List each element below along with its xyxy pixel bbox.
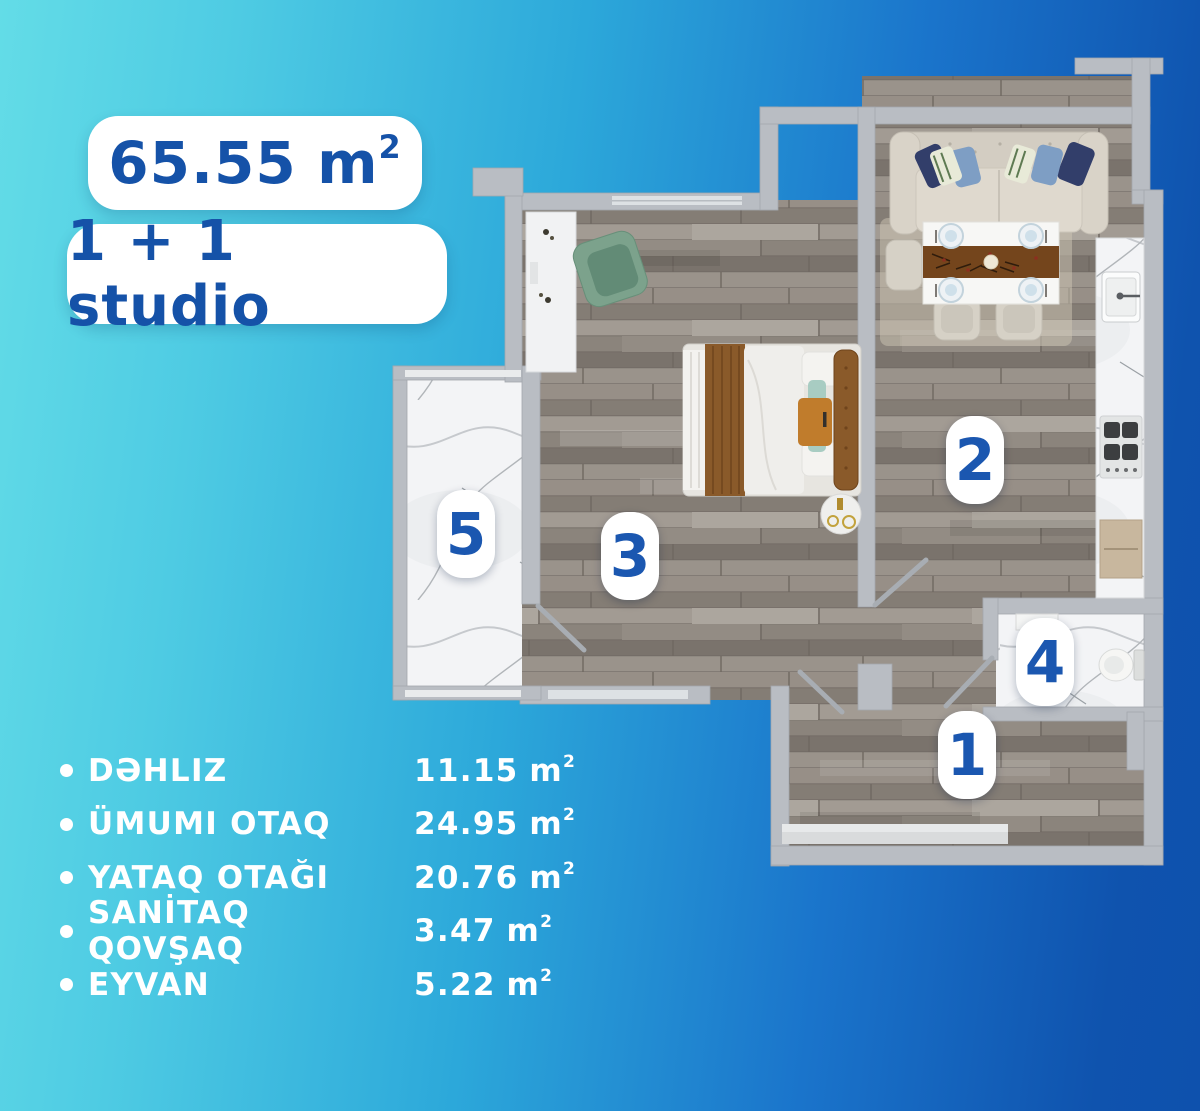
room-marker-4-bathroom: 4 <box>1016 618 1074 706</box>
room-number: 5 <box>446 500 486 568</box>
nightstand <box>821 494 861 534</box>
legend-value: 5.22m2 <box>414 967 553 1003</box>
bullet-icon <box>60 925 73 938</box>
floor-plan-poster: 65.55m2 1 + 1 studio 1 2 3 4 5 DƏHLIZ 11… <box>0 0 1200 1111</box>
room-number: 4 <box>1025 628 1065 696</box>
dining-chair <box>886 240 922 290</box>
room-number: 2 <box>955 426 995 494</box>
bed <box>683 344 861 496</box>
wall-pier <box>473 168 523 196</box>
sofa <box>890 132 1108 234</box>
type-label: 1 + 1 studio <box>67 209 447 339</box>
wall-balcony-right <box>522 366 540 604</box>
legend-label: SANİTAQ QOVŞAQ <box>88 895 414 967</box>
room-marker-3-bedroom: 3 <box>601 512 659 600</box>
kitchen-sink <box>1102 272 1140 322</box>
legend-item-sanitaq-qovsaq: SANİTAQ QOVŞAQ 3.47m2 <box>60 905 576 959</box>
balcony-window-bottom <box>405 690 521 697</box>
room-marker-5-balcony: 5 <box>437 490 495 578</box>
wall-right-upper <box>1132 58 1150 198</box>
bed-orange-pillow <box>798 398 832 446</box>
legend-label: EYVAN <box>88 967 414 1003</box>
legend-label: ÜMUMI OTAQ <box>88 806 414 842</box>
legend-item-dahliz: DƏHLIZ 11.15m2 <box>60 744 576 798</box>
wall-living-top <box>760 107 1150 124</box>
legend-value: 11.15m2 <box>414 753 576 789</box>
stove <box>1100 416 1142 478</box>
type-badge: 1 + 1 studio <box>67 224 447 324</box>
legend-label: YATAQ OTAĞI <box>88 860 414 896</box>
legend-value: 3.47m2 <box>414 913 553 949</box>
wall-bath-stub <box>1127 712 1144 770</box>
legend-label: DƏHLIZ <box>88 753 414 789</box>
bullet-icon <box>60 764 73 777</box>
wall-bottom <box>771 846 1163 865</box>
area-badge: 65.55m2 <box>88 116 422 210</box>
room-marker-1-hallway: 1 <box>938 711 996 799</box>
room-number: 3 <box>610 522 650 590</box>
bullet-icon <box>60 871 73 884</box>
bullet-icon <box>60 818 73 831</box>
desk <box>526 212 576 372</box>
legend-item-eyvan: EYVAN 5.22m2 <box>60 958 576 1012</box>
area-value: 65.55 <box>108 129 296 197</box>
room-number: 1 <box>947 721 987 789</box>
bullet-icon <box>60 978 73 991</box>
room-marker-2-living-room: 2 <box>946 416 1004 504</box>
wall-bath-left <box>983 598 998 660</box>
legend-value: 24.95m2 <box>414 806 576 842</box>
kitchen-counter <box>1096 238 1144 598</box>
balcony-window-top <box>405 370 521 377</box>
area-unit: m2 <box>317 129 402 197</box>
wall-divider-stub <box>858 664 892 710</box>
wall-bedroom-left <box>505 190 522 382</box>
bedroom-balcony-window <box>548 690 688 699</box>
wall-balcony-left <box>393 366 407 700</box>
legend-item-umumi-otaq: ÜMUMI OTAQ 24.95m2 <box>60 798 576 852</box>
toilet <box>1099 649 1144 681</box>
wall-bath-top <box>983 598 1163 614</box>
wall-right-main <box>1144 190 1163 865</box>
legend: DƏHLIZ 11.15m2 ÜMUMI OTAQ 24.95m2 YATAQ … <box>60 744 576 1012</box>
legend-value: 20.76m2 <box>414 860 576 896</box>
